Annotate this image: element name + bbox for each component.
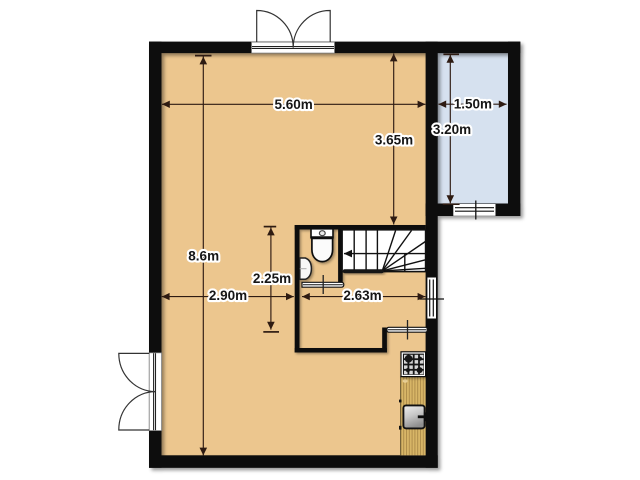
svg-text:2.63m: 2.63m: [343, 288, 381, 303]
svg-text:2.90m: 2.90m: [209, 288, 247, 303]
svg-text:3.65m: 3.65m: [375, 132, 413, 147]
svg-text:1.50m: 1.50m: [454, 96, 492, 111]
svg-text:8.6m: 8.6m: [188, 249, 219, 264]
svg-text:2.25m: 2.25m: [253, 271, 291, 286]
svg-text:5.60m: 5.60m: [274, 97, 312, 112]
svg-text:3.20m: 3.20m: [433, 122, 471, 137]
